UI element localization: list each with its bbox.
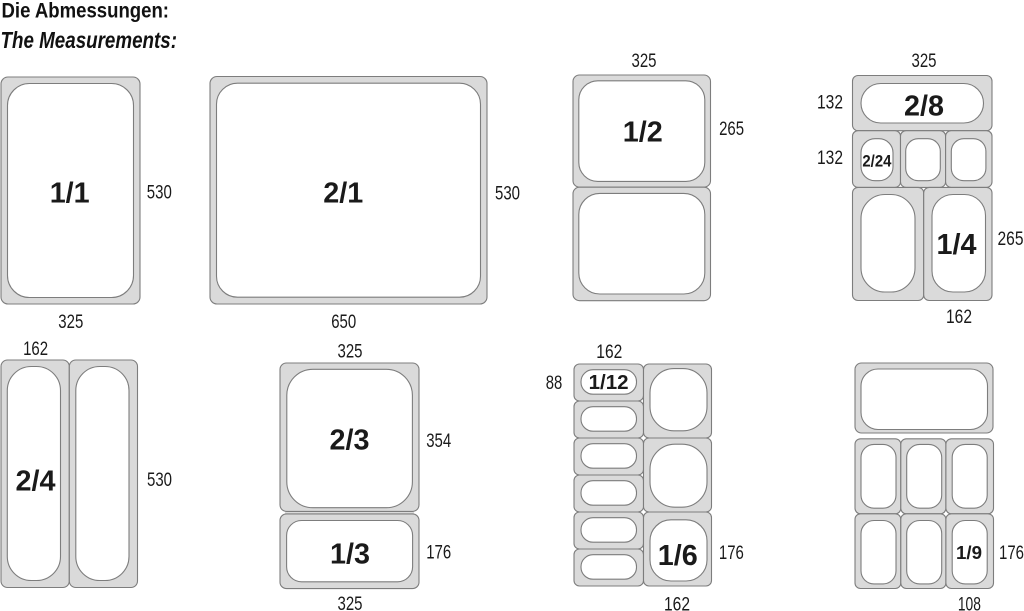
svg-text:2/1: 2/1 bbox=[323, 178, 363, 210]
svg-text:176: 176 bbox=[426, 542, 451, 564]
svg-text:325: 325 bbox=[338, 593, 363, 611]
svg-text:1/9: 1/9 bbox=[956, 543, 982, 563]
svg-text:108: 108 bbox=[958, 594, 981, 611]
svg-text:2/8: 2/8 bbox=[904, 90, 944, 122]
svg-text:1/1: 1/1 bbox=[50, 178, 90, 210]
svg-text:2/4: 2/4 bbox=[16, 465, 56, 497]
svg-text:2/24: 2/24 bbox=[862, 151, 891, 170]
svg-text:325: 325 bbox=[912, 50, 937, 72]
svg-text:530: 530 bbox=[147, 182, 172, 204]
svg-text:325: 325 bbox=[58, 311, 83, 333]
svg-text:325: 325 bbox=[338, 341, 363, 363]
svg-text:265: 265 bbox=[998, 228, 1024, 250]
svg-text:176: 176 bbox=[999, 542, 1024, 564]
svg-text:1/12: 1/12 bbox=[589, 371, 629, 394]
svg-text:176: 176 bbox=[719, 542, 744, 564]
svg-text:530: 530 bbox=[495, 182, 520, 204]
svg-text:650: 650 bbox=[331, 311, 356, 333]
svg-text:1/6: 1/6 bbox=[658, 540, 698, 572]
svg-text:Die Abmessungen:: Die Abmessungen: bbox=[2, 0, 170, 23]
svg-text:162: 162 bbox=[23, 338, 48, 360]
svg-text:162: 162 bbox=[946, 306, 972, 328]
svg-text:The Measurements:: The Measurements: bbox=[1, 27, 178, 53]
svg-text:2/3: 2/3 bbox=[330, 424, 370, 456]
svg-text:1/3: 1/3 bbox=[330, 538, 370, 570]
svg-text:530: 530 bbox=[147, 469, 172, 491]
svg-text:162: 162 bbox=[664, 594, 690, 611]
svg-text:1/2: 1/2 bbox=[623, 116, 663, 148]
svg-text:265: 265 bbox=[719, 118, 744, 140]
svg-text:354: 354 bbox=[426, 430, 451, 452]
svg-text:88: 88 bbox=[546, 372, 563, 394]
svg-text:132: 132 bbox=[817, 147, 843, 169]
svg-text:1/4: 1/4 bbox=[937, 229, 977, 261]
svg-text:325: 325 bbox=[632, 50, 657, 72]
svg-text:162: 162 bbox=[596, 341, 622, 363]
svg-text:132: 132 bbox=[817, 91, 843, 113]
